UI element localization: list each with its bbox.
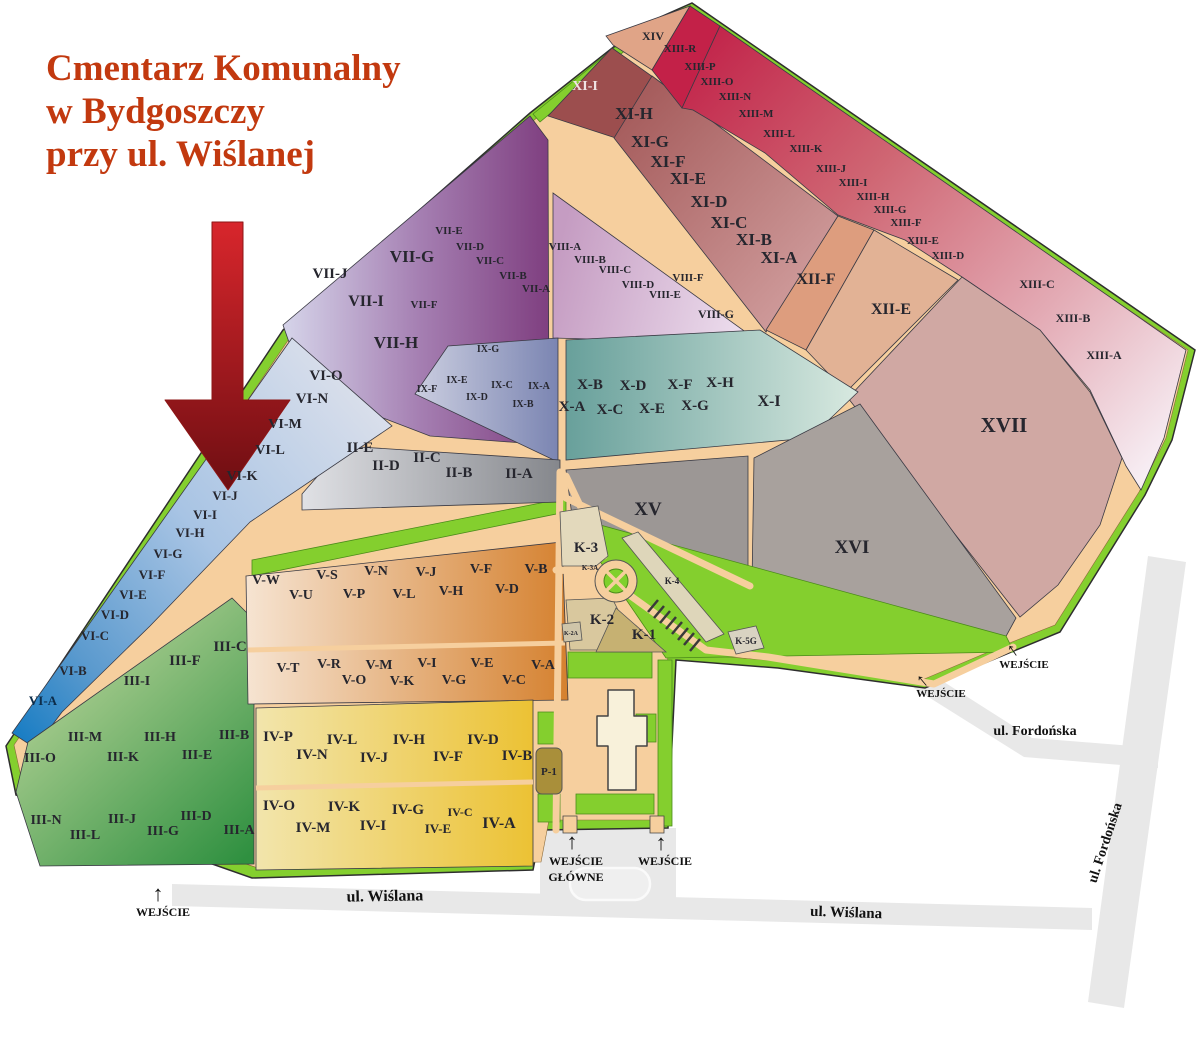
label-IV-I: IV-I bbox=[360, 818, 387, 834]
label-XIII-K: XIII-K bbox=[789, 143, 822, 155]
label-IV-E: IV-E bbox=[425, 821, 451, 836]
label-XIII-L: XIII-L bbox=[763, 128, 795, 140]
label-III-J: III-J bbox=[108, 812, 136, 827]
label-XIII-R: XIII-R bbox=[664, 43, 697, 55]
label-V-E: V-E bbox=[470, 656, 493, 671]
label-X-A: X-A bbox=[559, 399, 586, 415]
label-K-5G: K-5G bbox=[735, 636, 757, 646]
label-XI-D: XI-D bbox=[691, 192, 728, 211]
label-VII-J: VII-J bbox=[312, 266, 348, 282]
label-K-2: K-2 bbox=[590, 612, 614, 628]
label-XI-B: XI-B bbox=[736, 230, 772, 249]
label-XI-A: XI-A bbox=[761, 248, 799, 267]
label-X-G: X-G bbox=[681, 398, 709, 414]
label-VI-K: VI-K bbox=[226, 469, 257, 484]
label-VII-H: VII-H bbox=[374, 333, 418, 352]
label-VII-D: VII-D bbox=[456, 241, 484, 253]
label-VI-H: VI-H bbox=[176, 525, 205, 540]
label-V-T: V-T bbox=[276, 661, 300, 676]
label-X-E: X-E bbox=[639, 401, 665, 417]
label-V-C: V-C bbox=[502, 673, 526, 688]
label-IX-B: IX-B bbox=[512, 399, 533, 410]
label-VII-I: VII-I bbox=[348, 293, 384, 310]
label-IV-L: IV-L bbox=[327, 732, 358, 748]
label-VI-J: VI-J bbox=[212, 488, 238, 503]
green-patch-1 bbox=[568, 652, 652, 678]
label-XIII-B: XIII-B bbox=[1056, 311, 1091, 325]
label-V-I: V-I bbox=[417, 656, 436, 671]
label-XIII-M: XIII-M bbox=[739, 108, 774, 120]
label-X-H: X-H bbox=[706, 375, 734, 391]
label-XIII-F: XIII-F bbox=[890, 217, 921, 229]
label-XIII-C: XIII-C bbox=[1019, 277, 1054, 291]
label-V-L: V-L bbox=[392, 587, 415, 602]
entrance-label-ne: WEJŚCIE bbox=[999, 659, 1049, 671]
label-III-E: III-E bbox=[182, 748, 212, 763]
label-XI-H: XI-H bbox=[615, 104, 653, 123]
label-VIII-G: VIII-G bbox=[698, 307, 734, 321]
label-XIII-O: XIII-O bbox=[700, 76, 733, 88]
label-III-A: III-A bbox=[223, 823, 255, 838]
label-IV-M: IV-M bbox=[296, 820, 331, 836]
label-VI-D: VI-D bbox=[101, 607, 129, 622]
label-V-N: V-N bbox=[364, 564, 388, 579]
label-K-4: K-4 bbox=[665, 576, 680, 586]
label-X-C: X-C bbox=[597, 402, 624, 418]
label-XIII-N: XIII-N bbox=[719, 91, 751, 103]
label-IV-O: IV-O bbox=[263, 798, 295, 814]
label-V-F: V-F bbox=[470, 562, 492, 577]
label-XVII: XVII bbox=[981, 413, 1028, 437]
map-title: Cmentarz Komunalny w Bydgoszczy przy ul.… bbox=[46, 48, 401, 177]
label-III-D: III-D bbox=[180, 809, 211, 824]
screenshot-root: Cmentarz Komunalny w Bydgoszczy przy ul.… bbox=[0, 0, 1202, 1050]
map-title-line-1: Cmentarz Komunalny bbox=[46, 48, 401, 91]
label-IV-F: IV-F bbox=[433, 749, 463, 765]
label-VII-F: VII-F bbox=[411, 299, 438, 311]
label-K-3: K-3 bbox=[574, 540, 598, 556]
label-VIII-F: VIII-F bbox=[672, 272, 703, 284]
label-IX-G: IX-G bbox=[477, 344, 499, 355]
label-IX-A: IX-A bbox=[528, 381, 550, 392]
green-patch-5 bbox=[576, 794, 654, 814]
label-VIII-A: VIII-A bbox=[549, 241, 581, 253]
label-V-M: V-M bbox=[366, 658, 393, 673]
label-VIII-C: VIII-C bbox=[599, 264, 631, 276]
label-XIII-J: XIII-J bbox=[816, 163, 846, 175]
label-X-F: X-F bbox=[668, 377, 693, 393]
entrance-label-main-2: GŁÓWNE bbox=[548, 870, 603, 884]
label-XIII-I: XIII-I bbox=[839, 177, 868, 189]
label-VI-L: VI-L bbox=[255, 443, 285, 458]
label-IV-D: IV-D bbox=[467, 732, 499, 748]
label-IV-N: IV-N bbox=[296, 747, 328, 763]
label-III-G: III-G bbox=[147, 824, 179, 839]
label-II-C: II-C bbox=[413, 450, 441, 466]
label-XIII-D: XIII-D bbox=[932, 250, 964, 262]
label-XIII-P: XIII-P bbox=[684, 61, 715, 73]
label-IV-B: IV-B bbox=[502, 748, 533, 764]
entrance-arrow-main: ↑ bbox=[567, 829, 578, 854]
label-III-C: III-C bbox=[213, 639, 246, 655]
label-VI-I: VI-I bbox=[193, 507, 217, 522]
label-XI-E: XI-E bbox=[670, 169, 706, 188]
label-VI-N: VI-N bbox=[296, 391, 329, 407]
label-VII-A: VII-A bbox=[522, 283, 550, 295]
label-XVI: XVI bbox=[835, 537, 870, 558]
label-XI-I: XI-I bbox=[572, 79, 598, 94]
label-XII-E: XII-E bbox=[871, 301, 911, 318]
entrance-label-main-1: WEJŚCIE bbox=[549, 854, 603, 868]
label-VII-B: VII-B bbox=[499, 270, 527, 282]
label-V-D: V-D bbox=[495, 582, 519, 597]
label-VI-B: VI-B bbox=[59, 663, 87, 678]
green-patch-2 bbox=[658, 660, 672, 826]
label-II-B: II-B bbox=[446, 465, 473, 481]
label-V-H: V-H bbox=[439, 584, 464, 599]
label-IV-H: IV-H bbox=[393, 732, 426, 748]
label-XV: XV bbox=[634, 499, 662, 520]
road-ul-fordonska bbox=[1088, 556, 1186, 1008]
label-VI-E: VI-E bbox=[119, 587, 146, 602]
label-K-2A: K-2A bbox=[564, 631, 579, 637]
label-XIII-A: XIII-A bbox=[1086, 348, 1122, 362]
label-XII-F: XII-F bbox=[796, 271, 835, 288]
label-V-S: V-S bbox=[316, 568, 338, 583]
label-III-I: III-I bbox=[124, 674, 150, 689]
label-V-U: V-U bbox=[289, 588, 313, 603]
entrance-label-sw: WEJŚCIE bbox=[136, 905, 190, 919]
label-K-3A: K-3A bbox=[582, 564, 598, 572]
label-III-M: III-M bbox=[68, 730, 102, 745]
label-V-A: V-A bbox=[531, 658, 556, 673]
label-III-F: III-F bbox=[169, 653, 201, 669]
entrance-label-se: WEJŚCIE bbox=[916, 688, 966, 700]
label-IV-P: IV-P bbox=[263, 729, 293, 745]
label-V-J: V-J bbox=[416, 565, 437, 580]
label-III-K: III-K bbox=[107, 750, 139, 765]
map-title-line-3: przy ul. Wiślanej bbox=[46, 134, 401, 177]
label-III-L: III-L bbox=[70, 828, 100, 843]
label-V-P: V-P bbox=[343, 587, 366, 602]
label-IV-J: IV-J bbox=[360, 750, 389, 766]
label-III-H: III-H bbox=[144, 730, 176, 745]
label-V-W: V-W bbox=[252, 573, 280, 588]
label-II-A: II-A bbox=[505, 466, 533, 482]
label-P-1: P-1 bbox=[541, 766, 557, 778]
label-VII-C: VII-C bbox=[476, 255, 504, 267]
label-VI-O: VI-O bbox=[309, 368, 342, 384]
entrance-arrow-east: ↑ bbox=[656, 830, 667, 855]
label-VIII-E: VIII-E bbox=[649, 289, 681, 301]
label-V-O: V-O bbox=[342, 673, 367, 688]
label-IV-K: IV-K bbox=[328, 799, 361, 815]
label-IX-C: IX-C bbox=[491, 380, 513, 391]
street-label-wislana-2: ul. Wiślana bbox=[810, 904, 883, 923]
label-VII-G: VII-G bbox=[390, 247, 434, 266]
label-K-1: K-1 bbox=[632, 627, 656, 643]
label-X-D: X-D bbox=[620, 378, 647, 394]
label-VII-E: VII-E bbox=[435, 225, 463, 237]
label-V-K: V-K bbox=[390, 674, 415, 689]
label-IV-A: IV-A bbox=[482, 815, 516, 832]
label-IX-E: IX-E bbox=[446, 375, 467, 386]
label-XIII-E: XIII-E bbox=[907, 235, 939, 247]
label-II-E: II-E bbox=[347, 440, 374, 456]
label-XIII-H: XIII-H bbox=[856, 191, 889, 203]
street-label-fordonska-1: ul. Fordońska bbox=[993, 724, 1076, 739]
label-IV-C: IV-C bbox=[447, 805, 472, 819]
label-VI-M: VI-M bbox=[268, 417, 301, 432]
label-XIII-G: XIII-G bbox=[873, 204, 906, 216]
label-III-B: III-B bbox=[219, 728, 249, 743]
label-IX-D: IX-D bbox=[466, 392, 488, 403]
label-X-I: X-I bbox=[757, 393, 780, 410]
label-V-B: V-B bbox=[524, 562, 547, 577]
map-title-line-2: w Bydgoszczy bbox=[46, 91, 401, 134]
road-fordonska-connector bbox=[914, 668, 1158, 768]
label-VI-C: VI-C bbox=[81, 628, 109, 643]
label-II-D: II-D bbox=[372, 458, 400, 474]
label-XI-G: XI-G bbox=[631, 132, 669, 151]
street-label-wislana-1: ul. Wiślana bbox=[346, 887, 423, 905]
entrance-arrow-sw: ↑ bbox=[153, 881, 164, 906]
label-XIV: XIV bbox=[642, 29, 664, 43]
label-X-B: X-B bbox=[577, 377, 603, 393]
label-VI-F: VI-F bbox=[139, 567, 166, 582]
label-IV-G: IV-G bbox=[392, 802, 425, 818]
label-III-N: III-N bbox=[30, 813, 61, 828]
label-V-G: V-G bbox=[442, 673, 467, 688]
label-IX-F: IX-F bbox=[417, 384, 438, 395]
label-VI-G: VI-G bbox=[154, 546, 183, 561]
label-III-O: III-O bbox=[24, 751, 56, 766]
label-VI-A: VI-A bbox=[29, 693, 58, 708]
entrance-label-east: WEJŚCIE bbox=[638, 854, 692, 868]
label-V-R: V-R bbox=[317, 657, 342, 672]
